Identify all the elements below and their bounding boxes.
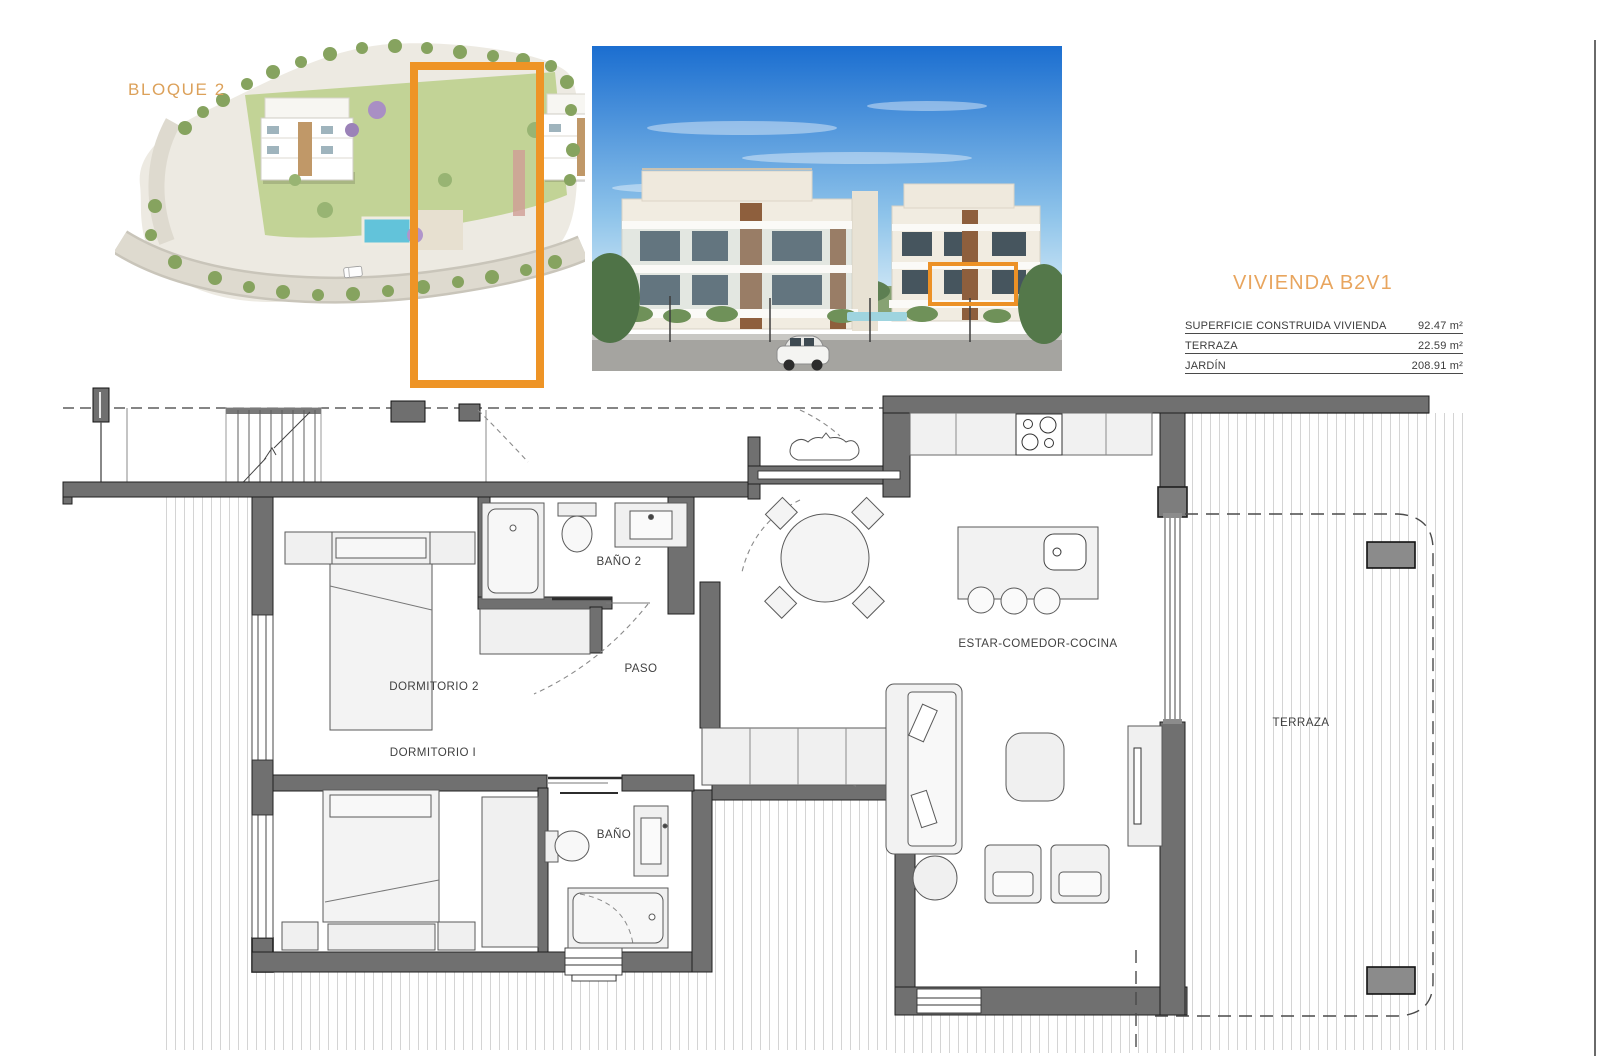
- armchair: [985, 845, 1041, 903]
- armchair: [1051, 845, 1109, 903]
- area-row: JARDÍN 208.91 m²: [1185, 354, 1463, 374]
- porch-decor: [790, 433, 859, 460]
- window-bath1: [565, 948, 622, 981]
- area-value: 208.91 m²: [1412, 360, 1463, 372]
- sliding-glass-door-terrace: [1163, 513, 1182, 724]
- area-value: 92.47 m²: [1418, 320, 1463, 332]
- kitchen-counter: [910, 413, 1152, 455]
- label-paso: PASO: [625, 662, 658, 675]
- unit-title: VIVIENDA B2V1: [1233, 272, 1393, 295]
- aerial-car: [344, 266, 363, 278]
- sink-bath2: [615, 503, 687, 547]
- bed-dorm2: [330, 564, 432, 730]
- toilet-bath2: [558, 503, 596, 552]
- aerial-building-right: [543, 94, 585, 182]
- hall-closet: [702, 728, 893, 785]
- area-table: SUPERFICIE CONSTRUIDA VIVIENDA 92.47 m² …: [1185, 314, 1463, 374]
- area-label: TERRAZA: [1185, 340, 1238, 352]
- label-dormitorio2: DORMITORIO 2: [389, 680, 479, 693]
- bathtub-bath2: [482, 503, 544, 599]
- block-label: BLOQUE 2: [128, 80, 226, 100]
- closet-dorm2: [480, 609, 590, 654]
- sofa: [886, 684, 962, 854]
- terrace-planter: [1367, 542, 1415, 568]
- area-value: 22.59 m²: [1418, 340, 1463, 352]
- label-dormitorio1: DORMITORIO I: [390, 746, 476, 759]
- sink-bath1: [634, 806, 668, 876]
- photo-pool: [847, 312, 907, 321]
- area-row: SUPERFICIE CONSTRUIDA VIVIENDA 92.47 m²: [1185, 314, 1463, 334]
- area-row: TERRAZA 22.59 m²: [1185, 334, 1463, 354]
- wardrobe-dorm1: [482, 797, 538, 947]
- label-estar: ESTAR-COMEDOR-COCINA: [958, 637, 1117, 650]
- stool: [968, 587, 994, 613]
- coffee-table: [1006, 733, 1064, 801]
- perspective-photo-render: [592, 46, 1062, 371]
- aerial-building-left: [261, 98, 355, 184]
- railing-post: [93, 388, 109, 482]
- dining-table: [765, 497, 885, 618]
- highlight-box-unit: [928, 262, 1018, 306]
- cooktop: [1016, 414, 1062, 455]
- window-living-south: [917, 989, 981, 1013]
- area-label: JARDÍN: [1185, 360, 1226, 372]
- stool: [1001, 588, 1027, 614]
- label-terraza: TERRAZA: [1273, 716, 1330, 729]
- label-bano: BAÑO: [597, 828, 631, 841]
- window-dorm2: [252, 615, 273, 760]
- toilet-bath1: [545, 831, 589, 862]
- kitchen-island: [958, 527, 1098, 614]
- bed-dorm1: [282, 790, 475, 950]
- terrace-planter: [1367, 967, 1415, 994]
- area-label: SUPERFICIE CONSTRUIDA VIVIENDA: [1185, 320, 1387, 332]
- window-dorm1: [252, 815, 273, 938]
- wardrobe-dorm2: [285, 532, 475, 564]
- porch-step-slot: [758, 471, 900, 479]
- tv-console: [1128, 726, 1162, 846]
- shower-bath1: [568, 888, 668, 948]
- label-bano2: BAÑO 2: [597, 555, 642, 568]
- stool: [1034, 588, 1060, 614]
- side-table: [913, 856, 957, 900]
- highlight-box-block2: [410, 62, 544, 388]
